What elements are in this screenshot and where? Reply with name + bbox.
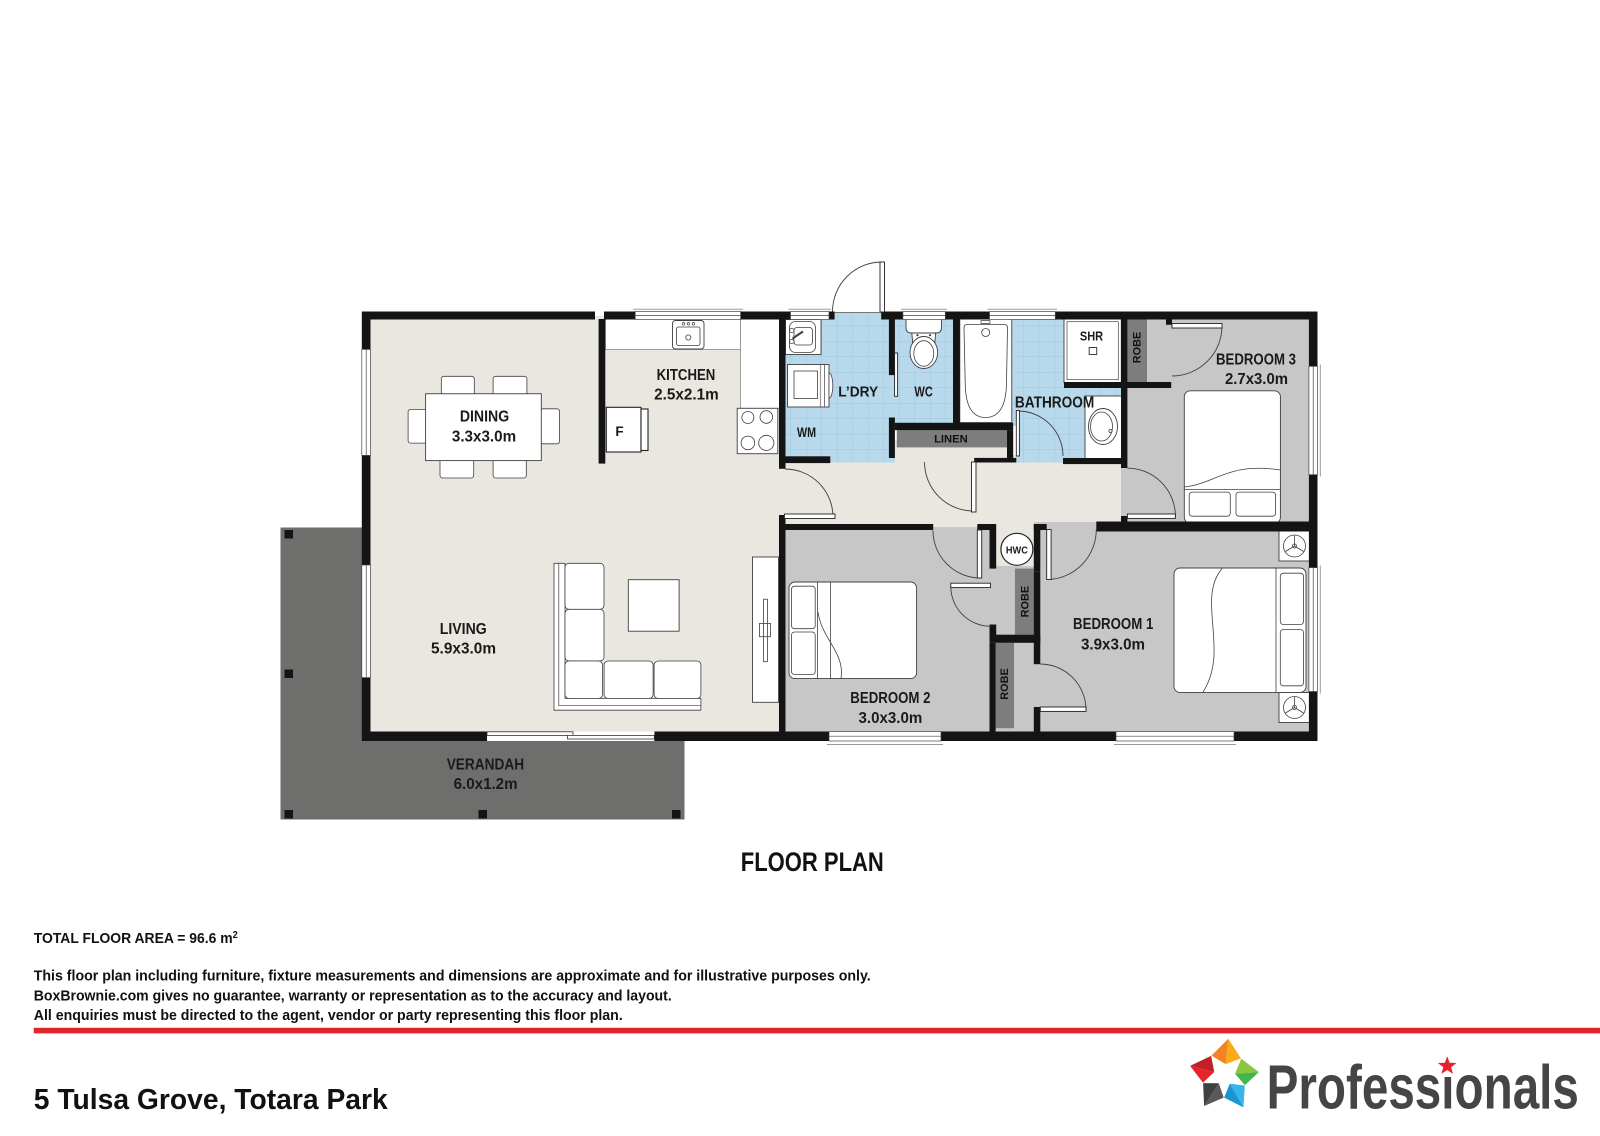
svg-text:6.0x1.2m: 6.0x1.2m: [454, 776, 518, 793]
svg-text:BATHROOM: BATHROOM: [1015, 395, 1094, 412]
svg-text:LIVING: LIVING: [440, 621, 487, 638]
svg-text:5.9x3.0m: 5.9x3.0m: [431, 641, 496, 658]
svg-text:ROBE: ROBE: [999, 668, 1011, 700]
svg-text:BEDROOM 2: BEDROOM 2: [850, 690, 930, 707]
svg-text:L’DRY: L’DRY: [838, 384, 878, 401]
svg-text:BEDROOM 3: BEDROOM 3: [1216, 351, 1296, 368]
svg-text:ROBE: ROBE: [1131, 332, 1143, 364]
svg-text:Professionals: Professionals: [1267, 1054, 1579, 1123]
svg-text:3.0x3.0m: 3.0x3.0m: [859, 710, 923, 727]
svg-text:LINEN: LINEN: [934, 433, 968, 445]
svg-text:All enquiries must be directed: All enquiries must be directed to the ag…: [34, 1007, 623, 1024]
svg-text:BEDROOM 1: BEDROOM 1: [1073, 616, 1153, 633]
svg-text:2.5x2.1m: 2.5x2.1m: [654, 387, 719, 404]
svg-text:3.3x3.0m: 3.3x3.0m: [452, 428, 516, 445]
svg-text:HWC: HWC: [1006, 546, 1028, 557]
svg-text:3.9x3.0m: 3.9x3.0m: [1081, 637, 1145, 654]
svg-text:2.7x3.0m: 2.7x3.0m: [1225, 371, 1288, 388]
svg-text:BoxBrownie.com gives no guaran: BoxBrownie.com gives no guarantee, warra…: [34, 988, 672, 1005]
svg-text:FLOOR PLAN: FLOOR PLAN: [741, 847, 884, 877]
svg-text:5 Tulsa Grove, Totara Park: 5 Tulsa Grove, Totara Park: [34, 1084, 389, 1116]
svg-text:WC: WC: [914, 384, 933, 401]
svg-text:TOTAL FLOOR AREA = 96.6 m2: TOTAL FLOOR AREA = 96.6 m2: [34, 930, 238, 947]
svg-text:WM: WM: [797, 424, 816, 440]
svg-text:F: F: [615, 424, 623, 439]
svg-text:KITCHEN: KITCHEN: [657, 367, 716, 384]
svg-text:This floor plan including furn: This floor plan including furniture, fix…: [34, 968, 871, 985]
svg-text:DINING: DINING: [460, 409, 509, 426]
svg-text:ROBE: ROBE: [1020, 586, 1032, 618]
svg-text:SHR: SHR: [1080, 329, 1104, 344]
svg-text:VERANDAH: VERANDAH: [447, 757, 524, 774]
